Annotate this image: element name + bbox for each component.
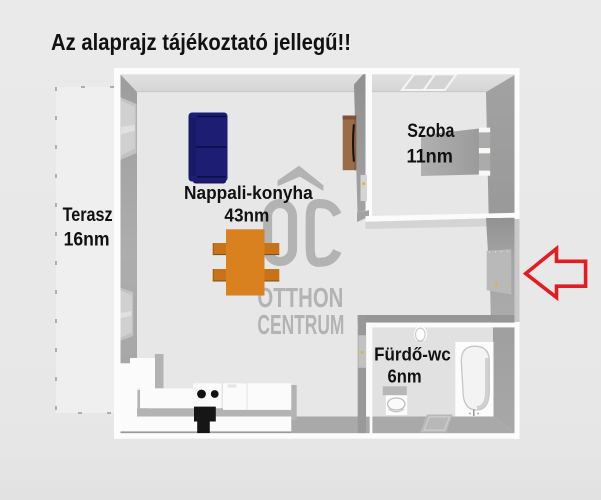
svg-text:Fürdő-wc: Fürdő-wc xyxy=(374,344,451,364)
svg-text:16nm: 16nm xyxy=(64,230,110,251)
svg-text:Szoba: Szoba xyxy=(407,121,455,142)
svg-text:Nappali-konyha: Nappali-konyha xyxy=(184,182,313,203)
svg-text:CENTRUM: CENTRUM xyxy=(257,308,344,340)
svg-text:Terasz: Terasz xyxy=(63,205,113,226)
svg-text:6nm: 6nm xyxy=(388,366,422,386)
svg-text:11nm: 11nm xyxy=(407,146,453,167)
svg-text:43nm: 43nm xyxy=(224,205,269,226)
svg-text:Az alaprajz tájékoztató jelleg: Az alaprajz tájékoztató jellegű!! xyxy=(51,29,351,55)
